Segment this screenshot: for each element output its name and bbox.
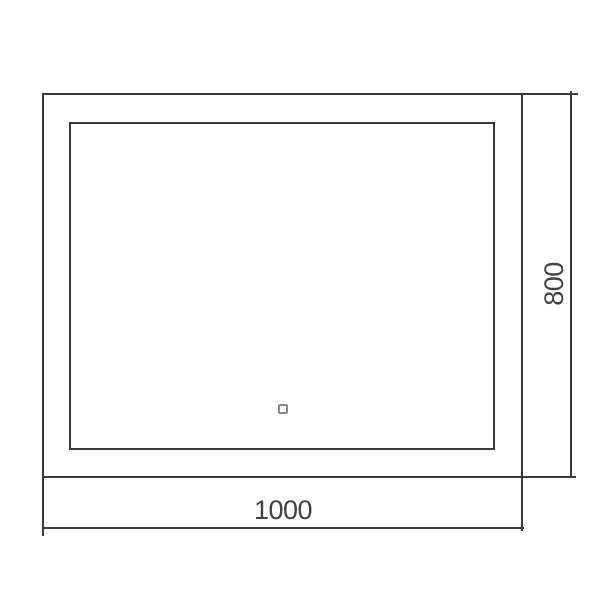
width-dimension-label: 1000	[42, 495, 524, 525]
height-dimension-line	[570, 91, 572, 478]
touch-sensor-icon	[278, 404, 288, 414]
height-dimension-label: 800	[540, 239, 568, 329]
mirror-glass-inner-frame	[69, 122, 495, 450]
height-extension-line-bottom	[523, 476, 576, 478]
width-dimension-line	[42, 527, 524, 529]
dimension-drawing-canvas: 1000 800	[0, 0, 600, 600]
